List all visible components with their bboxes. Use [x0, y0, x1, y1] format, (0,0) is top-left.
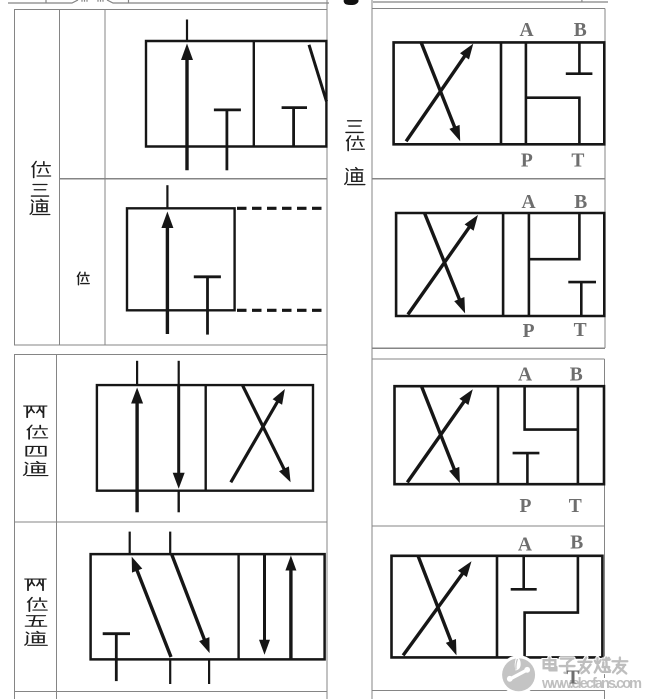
svg-text:T: T [566, 668, 579, 689]
svg-text:www.elecfans.com: www.elecfans.com [541, 676, 642, 692]
svg-text:P: P [519, 496, 531, 517]
svg-text:A: A [520, 20, 534, 41]
svg-text:P: P [521, 151, 533, 172]
svg-text:B: B [574, 192, 587, 213]
svg-text:P: P [523, 321, 535, 342]
svg-text:T: T [569, 496, 582, 517]
svg-text:A: A [518, 534, 532, 555]
svg-text:B: B [570, 365, 583, 386]
svg-text:B: B [574, 20, 587, 41]
svg-text:T: T [574, 320, 587, 341]
svg-text:B: B [570, 533, 583, 554]
svg-text:A: A [522, 192, 536, 213]
svg-text:A: A [518, 365, 532, 386]
svg-text:T: T [571, 151, 584, 172]
